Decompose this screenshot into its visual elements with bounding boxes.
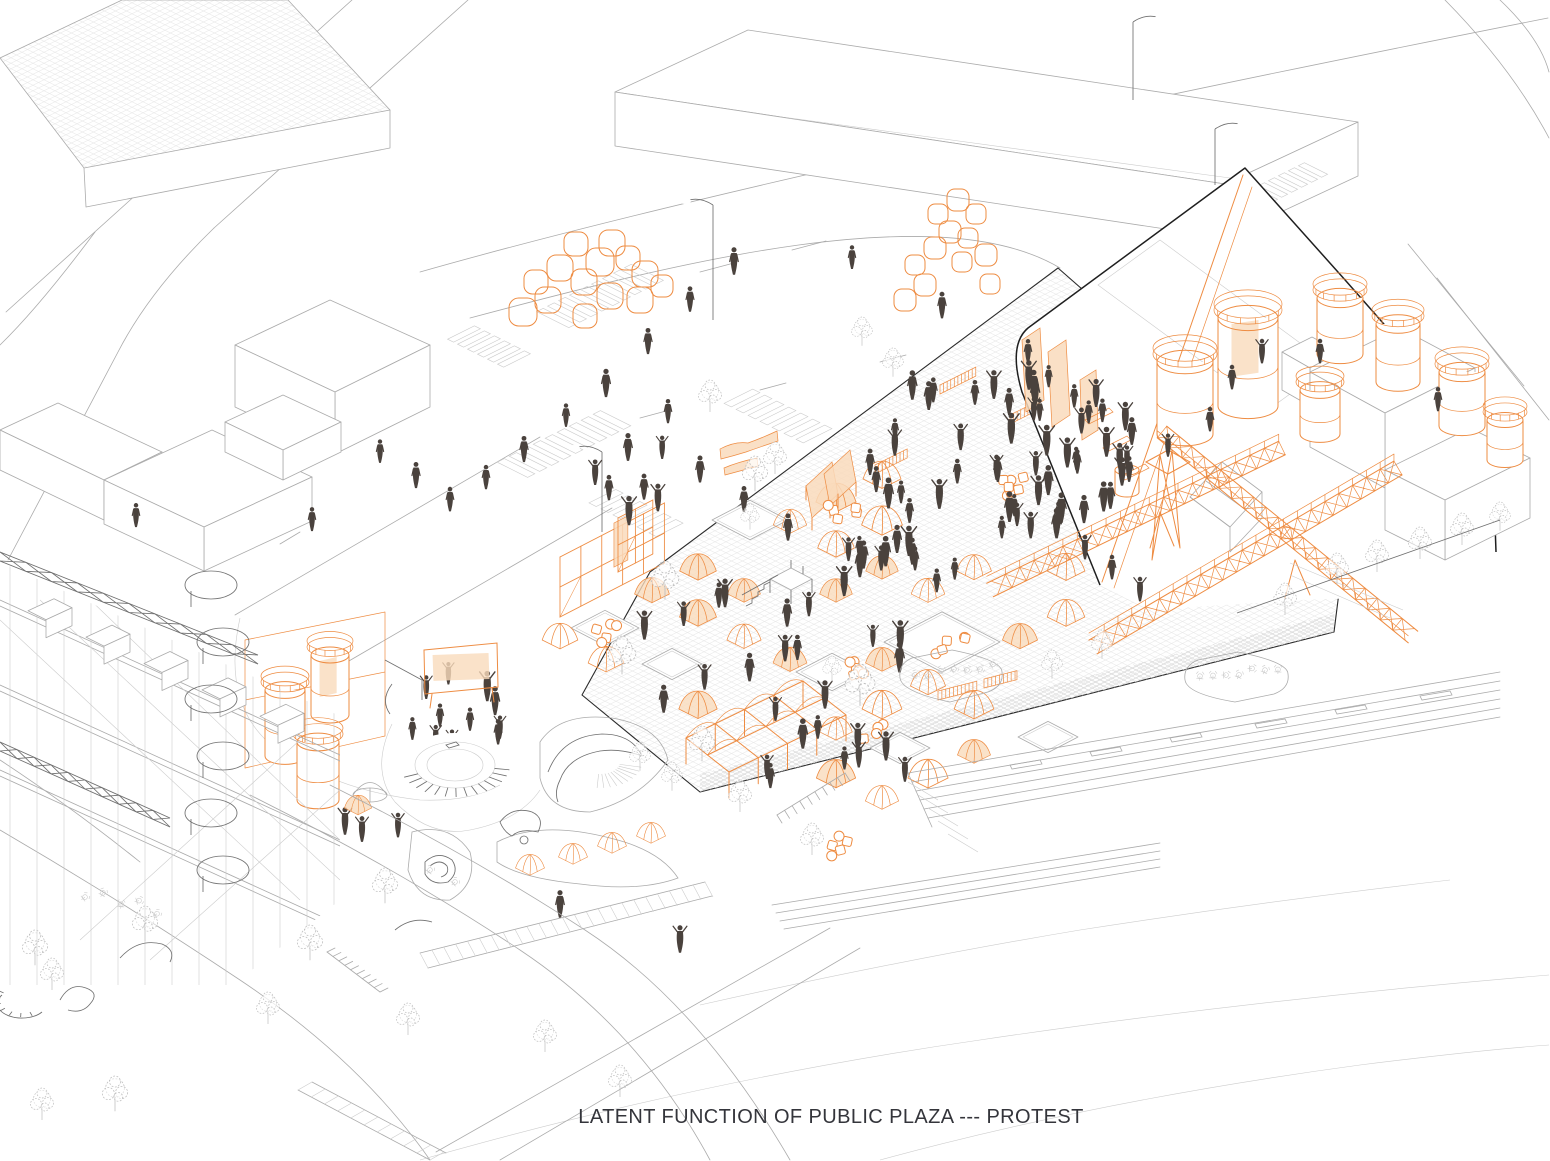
tree xyxy=(729,780,752,812)
cafe-chair xyxy=(449,876,461,888)
person-figure xyxy=(412,462,420,488)
tree xyxy=(397,1003,420,1035)
cafe-chair xyxy=(79,891,91,903)
storefront-row xyxy=(0,300,430,571)
person-figure xyxy=(656,436,668,459)
cafe-chair xyxy=(1274,665,1282,674)
construction-frame-building xyxy=(0,545,340,985)
tree xyxy=(883,348,904,377)
person-figure xyxy=(624,433,633,461)
person-figure xyxy=(376,439,383,463)
dome-tent xyxy=(865,785,898,809)
dome-tent xyxy=(598,832,627,853)
sunken-amphitheater xyxy=(400,733,510,797)
person-figure xyxy=(848,245,855,269)
site-axonometric-drawing xyxy=(0,0,1550,1161)
caption: LATENT FUNCTION OF PUBLIC PLAZA --- PROT… xyxy=(0,1106,1550,1129)
person-figure xyxy=(602,369,611,397)
small-tent-row xyxy=(344,795,665,875)
person-figure xyxy=(730,247,738,274)
person-figure xyxy=(436,703,443,726)
street-lamp xyxy=(568,445,602,532)
person-figure xyxy=(482,465,490,489)
person-figure xyxy=(686,286,694,311)
tree xyxy=(764,442,787,474)
curved-benches xyxy=(0,920,432,1018)
silo-tank xyxy=(1372,299,1424,391)
tree xyxy=(534,1020,557,1052)
balloon-cluster-north xyxy=(894,189,1000,311)
dome-tent xyxy=(908,759,948,788)
tree xyxy=(852,317,873,346)
crosswalk xyxy=(448,326,531,367)
person-figure xyxy=(605,475,613,500)
person-figure xyxy=(644,328,652,354)
cafe-chair xyxy=(97,887,108,899)
person-figure xyxy=(356,816,369,842)
dome-tent xyxy=(637,822,666,843)
person-figure xyxy=(664,399,671,423)
cafe-chair xyxy=(1259,664,1270,676)
person-figure xyxy=(899,757,912,782)
drawing-canvas: LATENT FUNCTION OF PUBLIC PLAZA --- PROT… xyxy=(0,0,1550,1161)
west-silo-cluster xyxy=(245,612,422,809)
bench-row xyxy=(327,948,388,992)
tree xyxy=(609,1065,632,1097)
person-figure xyxy=(852,741,865,767)
tree xyxy=(699,380,722,412)
silo-tank xyxy=(1483,397,1527,468)
dome-tent xyxy=(816,760,855,788)
promenade-boardwalk xyxy=(250,785,860,1160)
street-lamp xyxy=(679,198,713,320)
cafe-chair xyxy=(1247,664,1256,673)
dome-tent xyxy=(559,843,588,864)
person-figure xyxy=(392,813,404,838)
cafe-chair xyxy=(1234,669,1245,680)
person-figure xyxy=(673,925,687,952)
person-figure xyxy=(409,717,416,740)
person-figure xyxy=(466,707,473,730)
tree xyxy=(257,992,280,1024)
cafe-chair xyxy=(1196,671,1205,681)
tree xyxy=(801,823,824,855)
cafe-chair xyxy=(134,896,145,906)
gridded-roof-building xyxy=(0,0,390,207)
tree xyxy=(297,925,322,960)
dome-tent xyxy=(516,854,545,875)
street-lamp xyxy=(1133,15,1167,100)
person-figure xyxy=(640,474,648,500)
person-figure xyxy=(589,459,602,485)
balloon-cluster-west xyxy=(509,230,673,328)
tree xyxy=(372,868,397,903)
cafe-chair xyxy=(1221,671,1230,679)
drum-props xyxy=(827,831,853,861)
person-figure xyxy=(446,487,454,512)
person-figure xyxy=(562,403,569,426)
person-figure xyxy=(696,455,704,482)
tree xyxy=(41,958,64,990)
person-figure xyxy=(338,807,352,834)
bench-row xyxy=(777,773,850,823)
person-figure xyxy=(520,436,528,462)
silo-tank xyxy=(307,632,353,723)
tree xyxy=(22,930,47,965)
crosswalk xyxy=(724,389,832,443)
person-figure xyxy=(938,292,946,319)
cafe-chair xyxy=(1209,671,1217,680)
